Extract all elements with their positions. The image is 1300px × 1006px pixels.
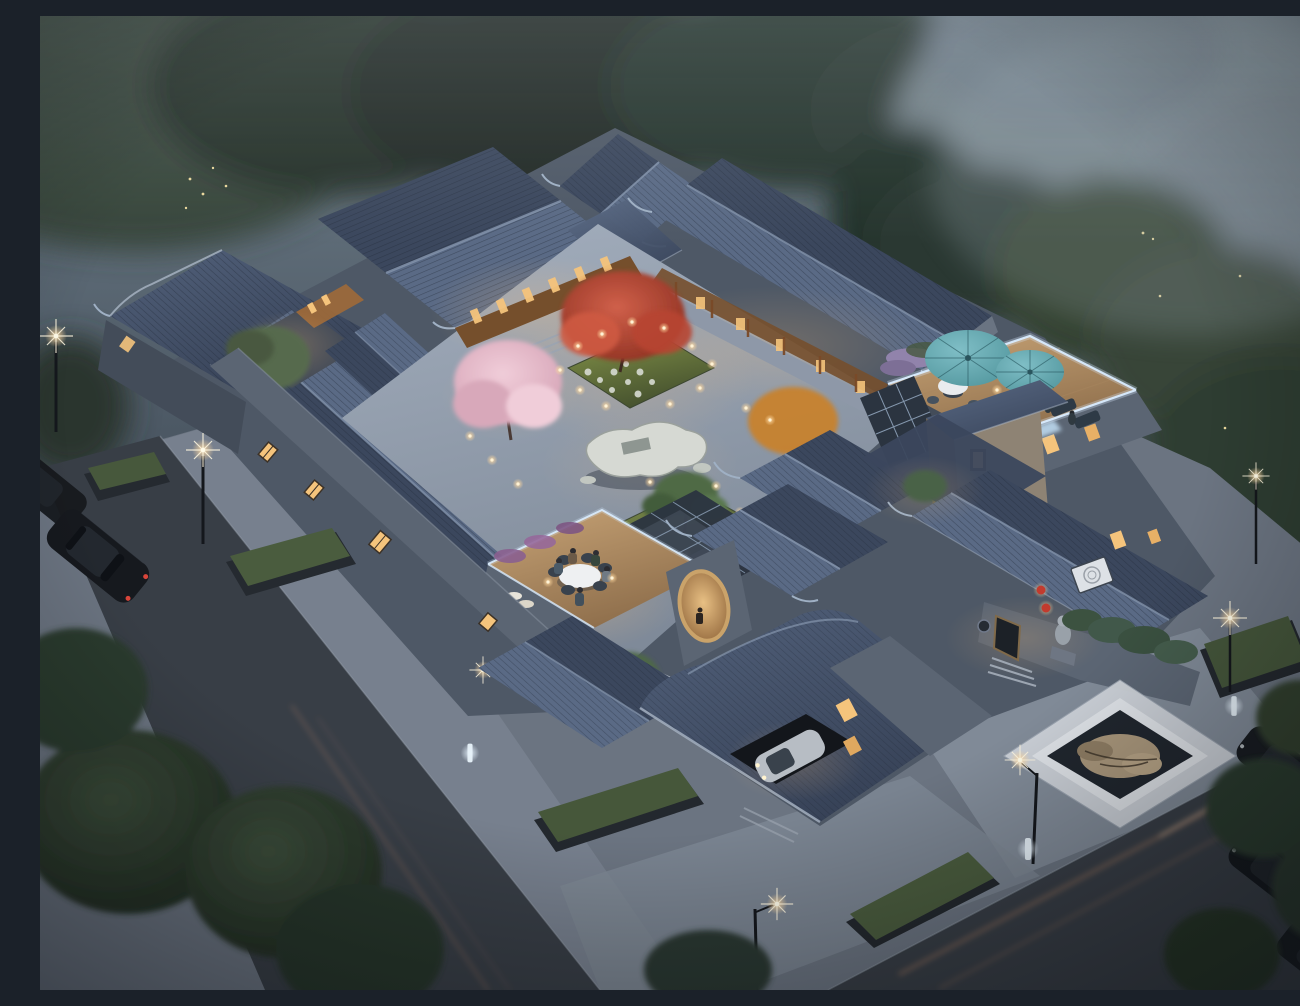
architectural-rendering: Aerial dusk rendering of a traditional C… bbox=[40, 16, 1300, 990]
rendering-canvas bbox=[40, 16, 1300, 990]
atmosphere bbox=[40, 16, 1300, 990]
